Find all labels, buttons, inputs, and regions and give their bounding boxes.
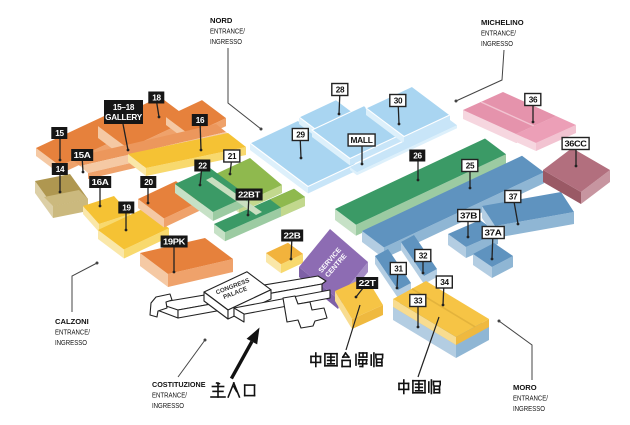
svg-text:22BT: 22BT [238, 191, 260, 200]
svg-text:15–18: 15–18 [113, 103, 135, 112]
svg-text:29: 29 [296, 131, 305, 140]
svg-text:ENTRANCE/: ENTRANCE/ [55, 328, 90, 337]
svg-text:22B: 22B [284, 232, 301, 241]
svg-text:INGRESSO: INGRESSO [55, 338, 87, 347]
svg-text:ENTRANCE/: ENTRANCE/ [481, 29, 516, 38]
svg-text:INGRESSO: INGRESSO [210, 37, 242, 46]
svg-text:26: 26 [413, 152, 422, 161]
svg-text:33: 33 [414, 297, 423, 306]
svg-text:31: 31 [394, 265, 403, 274]
svg-text:25: 25 [466, 162, 475, 171]
svg-text:16A: 16A [92, 178, 109, 187]
svg-text:COSTITUZIONE: COSTITUZIONE [152, 380, 206, 389]
svg-text:37A: 37A [485, 229, 502, 238]
svg-text:18: 18 [152, 94, 161, 103]
svg-text:37B: 37B [460, 212, 477, 221]
svg-text:NORD: NORD [210, 16, 233, 25]
svg-text:INGRESSO: INGRESSO [513, 404, 545, 413]
svg-text:36CC: 36CC [565, 140, 587, 149]
svg-text:MORO: MORO [513, 383, 537, 392]
svg-text:MICHELINO: MICHELINO [481, 18, 524, 27]
svg-text:INGRESSO: INGRESSO [152, 401, 184, 410]
svg-text:ENTRANCE/: ENTRANCE/ [210, 27, 245, 36]
svg-text:CALZONI: CALZONI [55, 317, 89, 326]
svg-text:20: 20 [144, 178, 153, 187]
svg-text:28: 28 [336, 86, 345, 95]
svg-text:15A: 15A [74, 151, 91, 160]
svg-text:MALL: MALL [351, 136, 373, 145]
svg-text:22: 22 [198, 162, 207, 171]
svg-text:14: 14 [56, 165, 65, 174]
svg-text:30: 30 [394, 97, 403, 106]
svg-text:21: 21 [228, 152, 237, 161]
svg-text:GALLERY: GALLERY [105, 113, 143, 122]
svg-text:15: 15 [55, 129, 64, 138]
svg-text:16: 16 [196, 116, 205, 125]
svg-text:19: 19 [122, 204, 131, 213]
svg-text:34: 34 [440, 278, 449, 287]
svg-text:36: 36 [529, 96, 538, 105]
svg-text:22T: 22T [359, 279, 376, 288]
svg-text:ENTRANCE/: ENTRANCE/ [152, 391, 187, 400]
svg-text:32: 32 [419, 252, 428, 261]
svg-text:ENTRANCE/: ENTRANCE/ [513, 394, 548, 403]
svg-text:19PK: 19PK [163, 238, 185, 247]
svg-text:37: 37 [509, 193, 518, 202]
svg-text:INGRESSO: INGRESSO [481, 39, 513, 48]
